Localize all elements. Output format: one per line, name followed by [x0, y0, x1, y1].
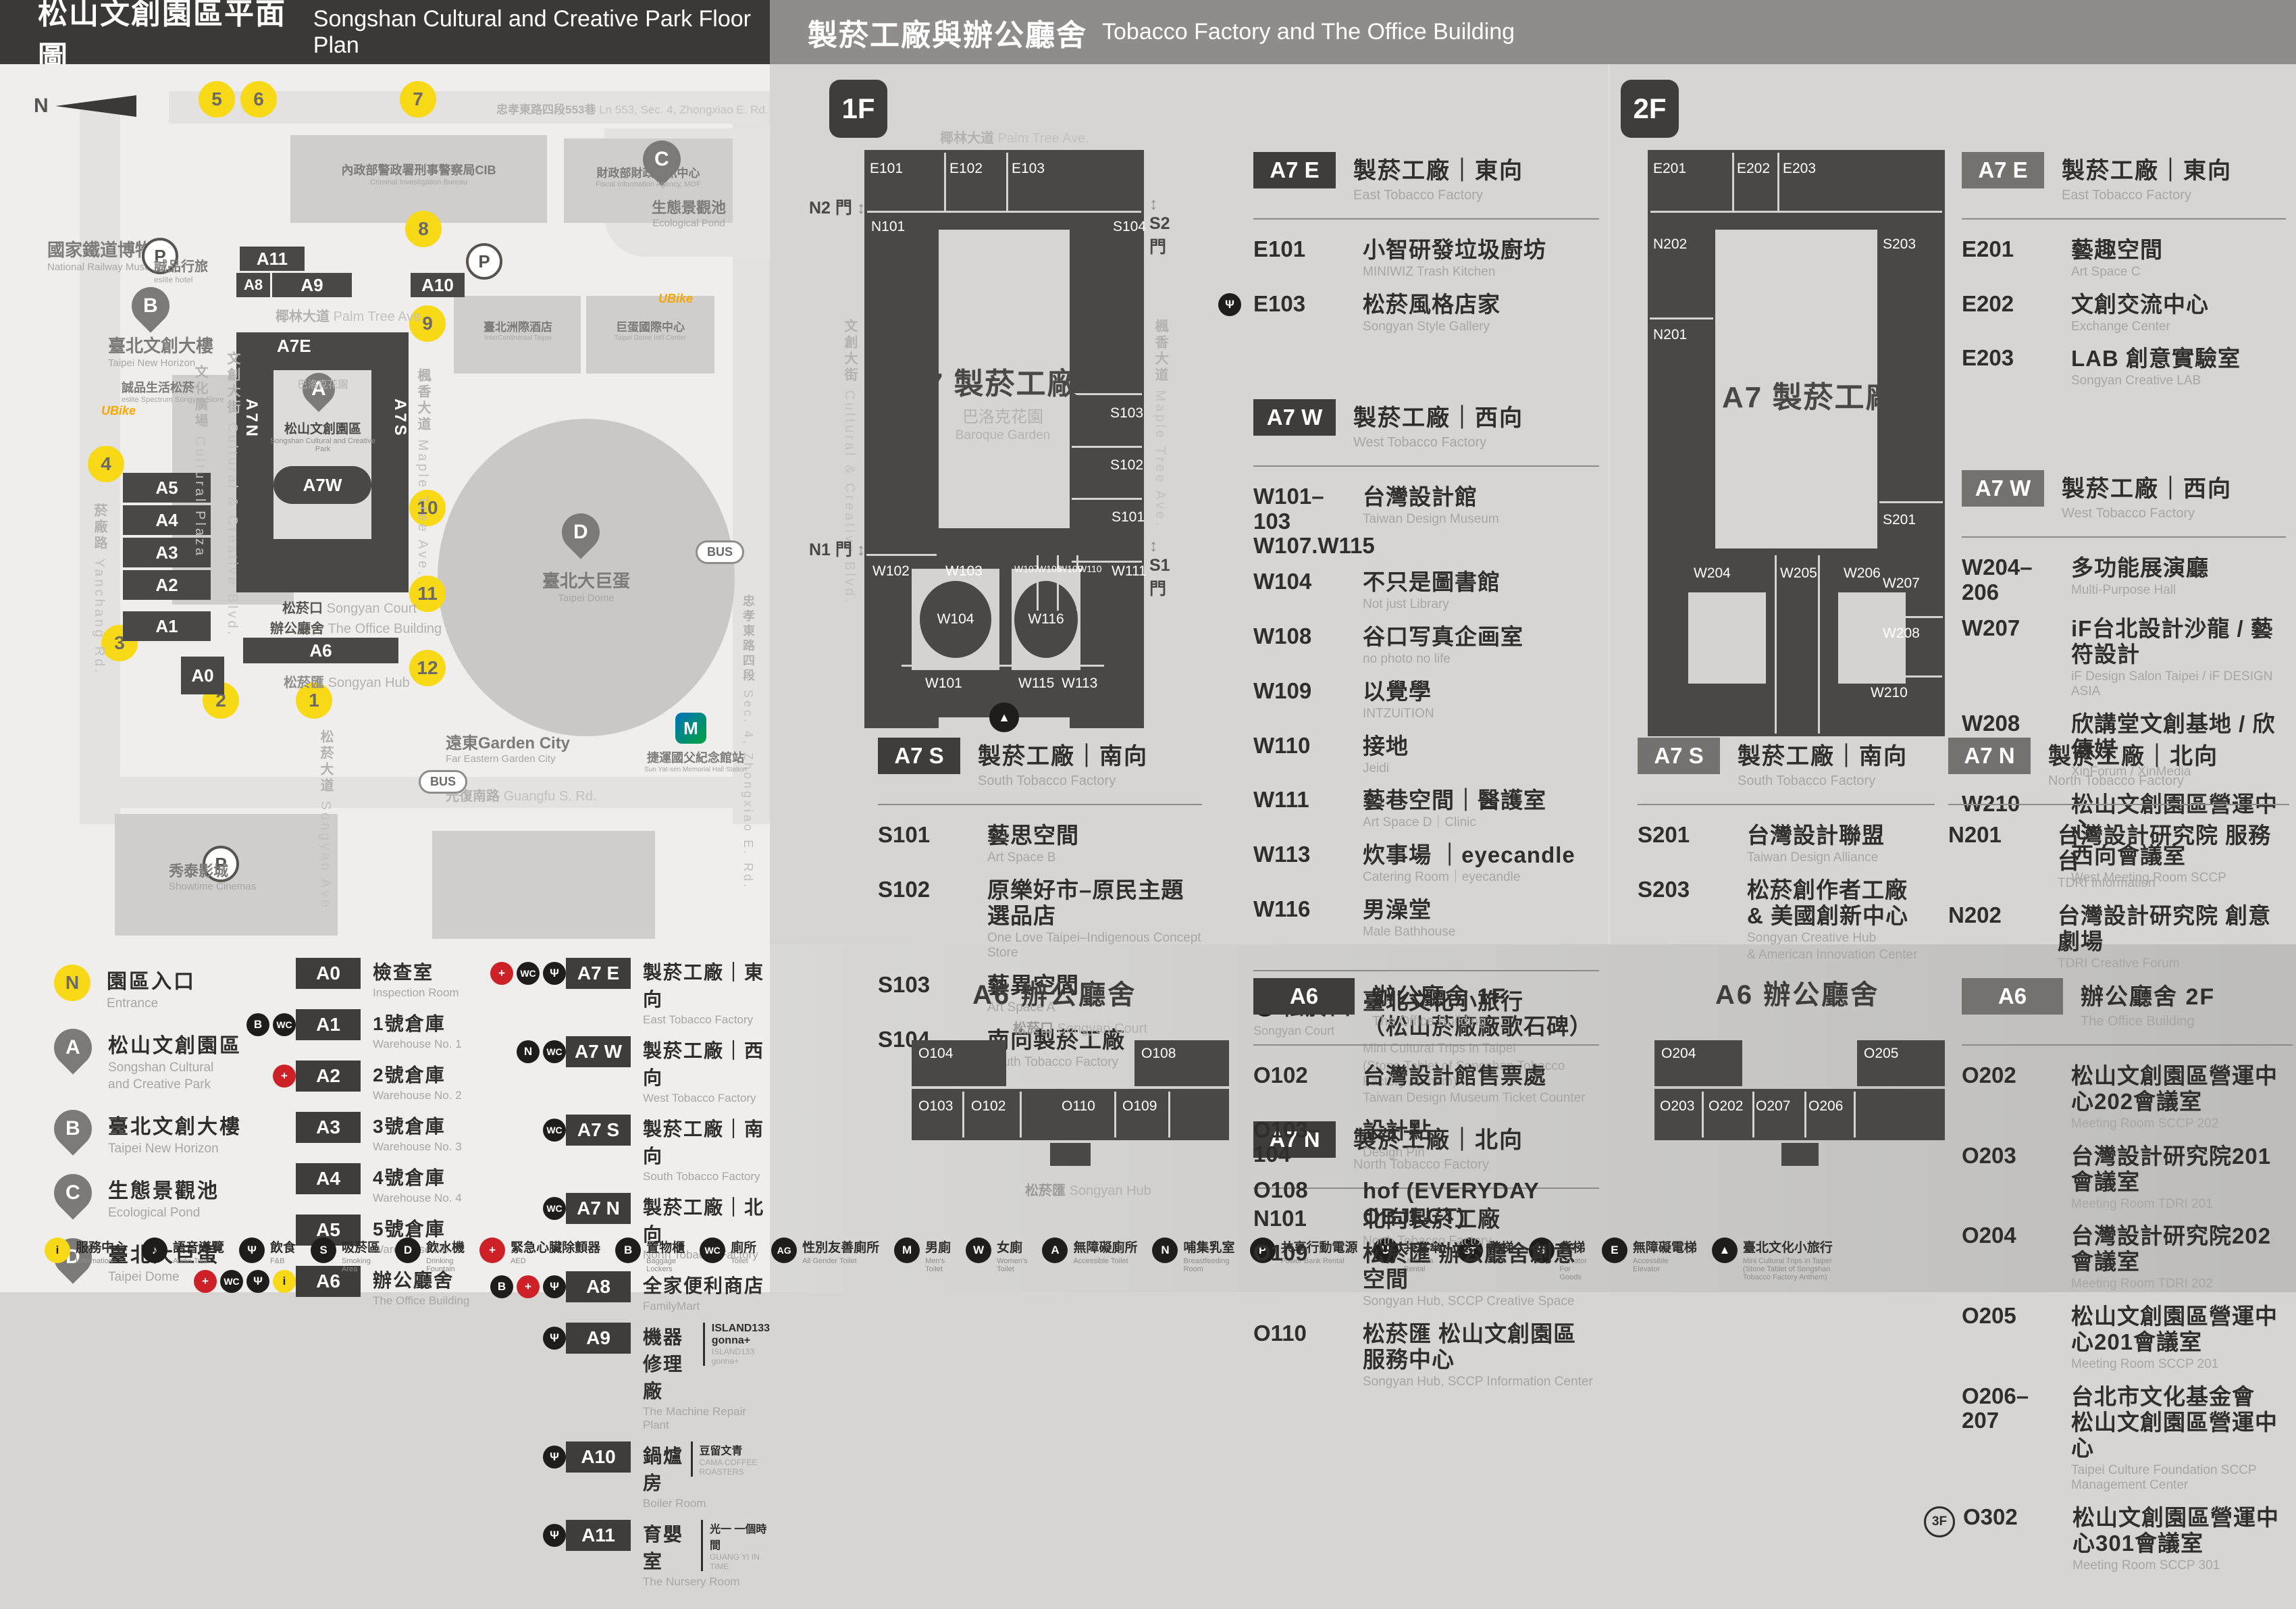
- facility-item: D 飲水機 Drinking Fountain: [395, 1237, 465, 1273]
- room-e102: E102: [949, 161, 983, 177]
- legend-icons: Ψ: [473, 1441, 566, 1468]
- gate-s2: ↕ S2 門: [1149, 195, 1170, 258]
- plan1f-street-right: 楓香大道 Maple Tree Ave.: [1151, 319, 1170, 528]
- legend-icons: WC: [473, 1193, 566, 1220]
- marker-icon: A: [46, 1021, 99, 1074]
- map-a10: A10: [411, 273, 465, 297]
- room-name: 藝巷空間｜醫護室 Art Space D｜Clinic: [1363, 788, 1546, 831]
- fnb-icon: Ψ: [543, 1446, 566, 1468]
- map-songyan-hub: 松菸匯 Songyan Hub: [284, 671, 410, 691]
- room-name: 炊事場 ｜eyecandle Catering Room｜eyecandle: [1363, 842, 1575, 886]
- statue-icon: ▲: [1712, 1237, 1738, 1263]
- legend-row: +WCΨ A7 E 製菸工廠｜東向 East Tobacco Factory: [473, 958, 770, 1027]
- room-name: 藝趣空間 Art Space C: [2071, 237, 2163, 280]
- section-badge: A7 S: [878, 738, 960, 774]
- directory-entry: 3F O302 松山文創園區營運中心301會議室 Meeting Room SC…: [1962, 1505, 2293, 1574]
- directory-entry: W204–206 多功能展演廳 Multi-Purpose Hall: [1962, 555, 2286, 605]
- tenant-label: 光一 一個時間GUANG YI IN TIME: [701, 1520, 770, 1571]
- room-name: 台灣設計研究院201會議室 Meeting Room TDRI 201: [2071, 1144, 2293, 1212]
- room-name: 接地 Jeidi: [1363, 734, 1409, 777]
- room-name: 台灣設計館售票處 Taiwan Design Museum Ticket Cou…: [1363, 1063, 1585, 1106]
- entrance-7: 7: [400, 81, 436, 118]
- legend-icons: [203, 1112, 296, 1116]
- room-name: 谷口写真企画室 no photo no life: [1363, 624, 1523, 667]
- directory-entry: O103–104 設計點 Design Pin: [1253, 1118, 1599, 1167]
- section-badge: A7 W: [1253, 399, 1336, 436]
- map-baroque: 巴洛克花園: [276, 378, 370, 392]
- parking-icon-2: P: [466, 243, 502, 280]
- directory-entry: W111 藝巷空間｜醫護室 Art Space D｜Clinic: [1253, 788, 1599, 831]
- room-o204: O204: [1661, 1046, 1696, 1062]
- section-badge: A6: [1253, 978, 1355, 1015]
- metro-logo: M: [675, 713, 706, 744]
- room-code: O302: [1963, 1505, 2066, 1574]
- legend-icons: +: [203, 1061, 296, 1088]
- tenant-label: 豆留文青CAMA COFFEE ROASTERS: [691, 1441, 770, 1477]
- room-s101: S101: [1112, 509, 1145, 526]
- nursing-icon: N: [1152, 1237, 1178, 1263]
- street-cc-blvd: 文創大街 Cultural & Creative Blvd.: [223, 351, 242, 637]
- aed-icon: +: [490, 962, 513, 985]
- legend-badge: A0: [296, 958, 361, 989]
- map-a9: A9: [272, 273, 352, 297]
- section-badge: A7 S: [1638, 738, 1720, 774]
- map-a7w-label: A7W: [273, 466, 371, 504]
- facility-item: E 無障礙電梯 Accessible Elevator: [1602, 1237, 1697, 1273]
- map-songyan-court: 松菸口 Songyan Court: [282, 597, 417, 617]
- marker-icon: N: [54, 965, 90, 1001]
- room-w205: W205: [1780, 565, 1817, 582]
- map-a2: A2: [123, 570, 211, 600]
- garden-city-building: [432, 831, 655, 939]
- directory-entry: O203 台灣設計研究院201會議室 Meeting Room TDRI 201: [1962, 1144, 2293, 1212]
- room-code: S103: [878, 973, 981, 1016]
- map-a1: A1: [123, 611, 211, 641]
- room-name: 松菸創作者工廠 & 美國創新中心 Songyan Creative Hub & …: [1747, 877, 1917, 963]
- legend-badge: A7 N: [566, 1193, 631, 1224]
- gate-s1: ↕ S1 門: [1149, 536, 1170, 600]
- directory-entry: S201 台灣設計聯盟 Taiwan Design Alliance: [1638, 823, 1935, 866]
- toilet-icon: WC: [273, 1013, 296, 1036]
- allgender-icon: AG: [771, 1237, 797, 1263]
- room-code: O110: [1253, 1321, 1356, 1390]
- street-songyan-ave: 松菸大道 Songyan Ave.: [316, 730, 336, 917]
- room-name: 多功能展演廳 Multi-Purpose Hall: [2071, 555, 2209, 605]
- legend-row: Ψ A9 機器修理廠 ISLAND133 gonna+ISLAND133 gon…: [473, 1323, 770, 1432]
- map-a8: A8: [236, 273, 270, 297]
- map-a0: A0: [181, 657, 224, 694]
- room-code: W116: [1253, 897, 1356, 940]
- room-s103: S103: [1110, 405, 1143, 422]
- legend-row: WC A7 S 製菸工廠｜南向 South Tobacco Factory: [473, 1115, 770, 1183]
- fnb-icon: Ψ: [543, 1327, 566, 1350]
- room-n201: N201: [1653, 327, 1687, 343]
- label-fia: 財政部財政資訊中心 Fiscal Information Agency, MOF: [577, 163, 719, 188]
- marker-icon: C: [46, 1166, 99, 1219]
- room-w115: W115: [1018, 675, 1054, 692]
- room-o104: O104: [918, 1046, 953, 1062]
- room-code: S102: [878, 877, 981, 961]
- a6-court-label: 松菸口 Songyan Court: [1013, 1017, 1147, 1037]
- section-badge: A7 E: [1962, 152, 2044, 188]
- legend-badge: A7 S: [566, 1115, 631, 1146]
- entrance-6: 6: [240, 81, 277, 118]
- room-name: 松菸風格店家 Songyan Style Gallery: [1363, 292, 1501, 335]
- floorplan-2f: E201 E202 E203 N202 N201 S203 S201 W204 …: [1648, 150, 1945, 736]
- info-icon: i: [45, 1237, 70, 1263]
- aed-icon: +: [479, 1237, 505, 1263]
- room-code: O206–207: [1962, 1384, 2064, 1493]
- floorplan-a6-2f: O204 O205 O203 O202 O207 O206: [1654, 1012, 1945, 1215]
- north-label: N: [34, 95, 49, 118]
- room-code: O204: [1962, 1223, 2064, 1292]
- floorplan-1f: 椰林大道 Palm Tree Ave. 文創大街 Cultural & Crea…: [864, 150, 1144, 728]
- legend-badge: A11: [566, 1520, 631, 1551]
- directory-entry: E201 藝趣空間 Art Space C: [1962, 237, 2286, 280]
- locker-icon: B: [615, 1237, 641, 1263]
- facility-item: ♪ 語音導覽 Audio Tour: [142, 1237, 224, 1265]
- room-code: N201: [1948, 823, 2051, 892]
- facility-item: Ψ 飲食 F&B: [239, 1237, 296, 1265]
- room-name: 小智研發垃圾廚坊 MINIWIZ Trash Kitchen: [1363, 237, 1546, 280]
- room-name: 台灣設計館 Taiwan Design Museum: [1363, 484, 1499, 558]
- marker-icon: B: [46, 1102, 99, 1155]
- label-eslite-hotel: 誠品行旅 eslite hotel: [154, 255, 208, 284]
- directory-entry: S203 松菸創作者工廠 & 美國創新中心 Songyan Creative H…: [1638, 877, 1935, 963]
- header-left: 松山文創園區平面圖 Songshan Cultural and Creative…: [0, 0, 770, 64]
- facility-item: W 女廁 Women's Toilet: [966, 1237, 1027, 1273]
- floor-divider: [1609, 64, 1610, 944]
- room-n101: N101: [871, 219, 905, 235]
- legend-icons: BWC: [203, 1009, 296, 1036]
- smoke-icon: S: [311, 1237, 336, 1263]
- legend-icons: Ψ: [473, 1520, 566, 1547]
- page-title-right-en: Tobacco Factory and The Office Building: [1102, 19, 1515, 45]
- map-a6: A6: [243, 638, 398, 663]
- legend-text: 製菸工廠｜南向 South Tobacco Factory: [643, 1115, 770, 1183]
- room-code: E201: [1962, 237, 2064, 280]
- bus-stop-icon-1: BUS: [419, 770, 467, 794]
- toilet-icon: WC: [700, 1237, 725, 1263]
- directory-items: N201 台灣設計研究院 服務台 TDRI Information N202 台…: [1948, 823, 2289, 971]
- directory-entry: W109 以覺學 INTZUiTION: [1253, 679, 1599, 722]
- statue-icon: ▲: [989, 703, 1019, 732]
- floor-3f-badge: 3F: [1924, 1506, 1955, 1537]
- room-name: 不只是圖書館 Not just Library: [1363, 569, 1501, 613]
- room-code: E203: [1962, 346, 2064, 389]
- room-o203: O203: [1660, 1098, 1694, 1115]
- ubike-icon-1: UBike: [101, 404, 136, 418]
- room-code: S101: [878, 823, 981, 866]
- legend-text: 2號倉庫 Warehouse No. 2: [373, 1061, 462, 1102]
- label-mrt: 捷運國父紀念館站 Sun Yat-sen Memorial Hall Stati…: [621, 748, 770, 773]
- legend-badge: A7 E: [566, 958, 631, 989]
- directory-entry: W104 不只是圖書館 Not just Library: [1253, 569, 1599, 613]
- floor-2f-badge: 2F: [1621, 80, 1679, 138]
- legend-text: 鍋爐房 豆留文青CAMA COFFEE ROASTERS Boiler Room: [643, 1441, 770, 1510]
- room-o202: O202: [1708, 1098, 1743, 1115]
- legend-row: NWC A7 W 製菸工廠｜西向 West Tobacco Factory: [473, 1036, 770, 1105]
- legend-row: A3 3號倉庫 Warehouse No. 3: [203, 1112, 473, 1154]
- room-w113: W113: [1062, 675, 1097, 692]
- room-e202: E202: [1737, 161, 1770, 177]
- directory-entry: W113 炊事場 ｜eyecandle Catering Room｜eyecan…: [1253, 842, 1599, 886]
- label-dome: 臺北大巨蛋 Taipei Dome: [525, 567, 647, 604]
- gate-n1: N1 門 ↕: [809, 536, 865, 561]
- room-o108: O108: [1141, 1046, 1176, 1062]
- room-name: 松菸匯 松山文創園區服務中心 Songyan Hub, SCCP Informa…: [1363, 1321, 1599, 1390]
- room-w206: W206: [1844, 565, 1881, 582]
- room-code: O109: [1253, 1241, 1356, 1310]
- room-name: 松山文創園區營運中心201會議室 Meeting Room SCCP 201: [2071, 1304, 2293, 1373]
- directory-entry: Ψ E103 松菸風格店家 Songyan Style Gallery: [1253, 292, 1599, 335]
- map-label-pond: 生態景觀池 Ecological Pond: [628, 196, 750, 229]
- directory-entry: S101 藝思空間 Art Space B: [878, 823, 1202, 866]
- street-palm: 椰林大道 Palm Tree Ave.: [276, 305, 425, 325]
- section-a7s-2f: A7 S 製菸工廠｜南向 South Tobacco Factory S201 …: [1638, 738, 1935, 998]
- room-name: 松菸匯 辦公廳舍創意空間 Songyan Hub, SCCP Creative …: [1363, 1241, 1599, 1310]
- facility-item: AG 性別友善廁所 All Gender Toilet: [771, 1237, 879, 1265]
- room-code: E202: [1962, 292, 2064, 335]
- room-w101: W101: [925, 675, 962, 692]
- room-w207: W207: [1883, 576, 1920, 592]
- room-code: E103: [1253, 292, 1356, 335]
- legend-icons: [203, 1163, 296, 1167]
- room-code: E101: [1253, 237, 1356, 280]
- legend-text: 機器修理廠 ISLAND133 gonna+ISLAND133 gonna+ T…: [643, 1323, 770, 1432]
- room-o103: O103: [918, 1098, 953, 1115]
- map-a7s-label: A7S: [390, 399, 409, 438]
- facility-item: WC 廁所 Toilet: [700, 1237, 756, 1265]
- directory-items: W101–103 W107.W115 台灣設計館 Taiwan Design M…: [1253, 484, 1599, 940]
- directory-entry: E202 文創交流中心 Exchange Center: [1962, 292, 2286, 335]
- room-code: S203: [1638, 877, 1740, 963]
- street-zhongxiao: 忠孝東路四段 Sec. 4, Zhongxiao E. Rd.: [739, 594, 757, 890]
- elevator-icon: E: [1602, 1237, 1627, 1263]
- legend-icons: +WCΨ: [473, 958, 566, 985]
- room-code: O202: [1962, 1063, 2064, 1132]
- room-code: W111: [1253, 788, 1356, 831]
- room-e201: E201: [1653, 161, 1686, 177]
- toilet-icon: WC: [543, 1197, 566, 1220]
- directory-items: O102 台灣設計館售票處 Taiwan Design Museum Ticke…: [1253, 1063, 1599, 1390]
- legend-badge: A4: [296, 1163, 361, 1194]
- label-dome-center: 巨蛋國際中心 Taipei Dome Int'l Center: [593, 317, 708, 342]
- room-o102: O102: [971, 1098, 1006, 1115]
- map-a11: A11: [240, 247, 305, 271]
- street-zhongxiao-lane: 忠孝東路四段553巷 Ln 553, Sec. 4, Zhongxiao E. …: [496, 100, 768, 117]
- section-badge: A7 E: [1253, 152, 1336, 188]
- directory-entry: O110 松菸匯 松山文創園區服務中心 Songyan Hub, SCCP In…: [1253, 1321, 1599, 1390]
- room-o206: O206: [1808, 1098, 1843, 1115]
- room-w204: W204: [1694, 565, 1731, 582]
- room-name: 台北市文化基金會 松山文創園區營運中心 Taipei Culture Found…: [2071, 1384, 2293, 1493]
- map-a7e-label: A7E: [277, 336, 311, 357]
- street-maple: 楓香大道 Maple Tree Ave.: [413, 368, 433, 578]
- legend-row: A0 檢查室 Inspection Room: [203, 958, 473, 1000]
- room-name: hof (EVERYDAY OBJECT): [1363, 1178, 1599, 1229]
- label-cib: 內政部警政署刑事警察局CIB Criminal Investigation Bu…: [317, 161, 520, 186]
- room-name: 男澡堂 Male Bathhouse: [1363, 897, 1455, 940]
- floor-1f-badge: 1F: [829, 80, 887, 138]
- section-badge: A6: [1962, 978, 2063, 1015]
- room-code: W104: [1253, 569, 1356, 613]
- directory-entry: O109 松菸匯 辦公廳舍創意空間 Songyan Hub, SCCP Crea…: [1253, 1241, 1599, 1310]
- room-e101: E101: [870, 161, 903, 177]
- directory-items: S201 台灣設計聯盟 Taiwan Design Alliance S203 …: [1638, 823, 1935, 963]
- legend-row: A4 4號倉庫 Warehouse No. 4: [203, 1163, 473, 1205]
- directory-entry: O204 台灣設計研究院202會議室 Meeting Room TDRI 202: [1962, 1223, 2293, 1292]
- directory-items: O202 松山文創園區營運中心202會議室 Meeting Room SCCP …: [1962, 1063, 2293, 1574]
- room-code: W207: [1962, 616, 2064, 700]
- room-code: N202: [1948, 903, 2051, 972]
- facility-item: M 男廁 Men's Toilet: [894, 1237, 951, 1273]
- directory-entry: S102 原樂好市–原民主題選品店 One Love Taipei–Indige…: [878, 877, 1202, 961]
- room-n202: N202: [1653, 236, 1687, 253]
- section-a7e-1f: A7 E 製菸工廠｜東向 East Tobacco Factory E101 小…: [1253, 152, 1599, 334]
- room-code: W110: [1253, 734, 1356, 777]
- legend-badge: A2: [296, 1061, 361, 1092]
- room-o205: O205: [1864, 1046, 1898, 1062]
- facility-item: B 置物櫃 Baggage Lockers: [615, 1237, 685, 1273]
- room-code: W204–206: [1962, 555, 2064, 605]
- room-name: 松山文創園區營運中心202會議室 Meeting Room SCCP 202: [2071, 1063, 2293, 1132]
- legend-icons: [203, 958, 296, 962]
- directory-entry: E203 LAB 創意實驗室 Songyan Creative LAB: [1962, 346, 2286, 389]
- directory-entry: O206–207 台北市文化基金會 松山文創園區營運中心 Taipei Cult…: [1962, 1384, 2293, 1493]
- facility-item: S 吸菸區 Smoking Area: [311, 1237, 380, 1273]
- room-w103: W103: [945, 563, 983, 580]
- legend-row: Ψ A11 育嬰室 光一 一個時間GUANG YI IN TIME The Nu…: [473, 1520, 770, 1589]
- street-yanchang: 菸廠路 Yanchang Rd.: [90, 503, 109, 675]
- section-a7n-2f: A7 N 製菸工廠｜北向 North Tobacco Factory N201 …: [1948, 738, 2289, 1006]
- legend-icons: WC: [473, 1115, 566, 1142]
- room-e103: E103: [1012, 161, 1045, 177]
- plan1f-center-label: A7 製菸工廠: [904, 359, 1078, 403]
- legend-text: 檢查室 Inspection Room: [373, 958, 459, 1000]
- legend-text: 製菸工廠｜西向 West Tobacco Factory: [643, 1036, 770, 1105]
- directory-entry: E101 小智研發垃圾廚坊 MINIWIZ Trash Kitchen: [1253, 237, 1599, 280]
- map-label-sccpark: 松山文創園區 Songshan Cultural and Creative Pa…: [269, 419, 377, 453]
- room-w110: W110: [1078, 563, 1102, 574]
- gate-n2: N2 門 ↕: [809, 195, 865, 219]
- room-name: 台灣設計研究院 服務台 TDRI Information: [2058, 823, 2289, 892]
- facility-item: N 哺集乳室 Breastfeeding Room: [1152, 1237, 1234, 1273]
- legend-badge: A1: [296, 1009, 361, 1040]
- room-code: W113: [1253, 842, 1356, 886]
- room-code: O205: [1962, 1304, 2064, 1373]
- directory-entry: W108 谷口写真企画室 no photo no life: [1253, 624, 1599, 667]
- facility-item: A 無障礙廁所 Accessible Toilet: [1042, 1237, 1137, 1265]
- plan1f-street-top: 椰林大道 Palm Tree Ave.: [940, 127, 1089, 147]
- label-garden-city: 遠東Garden City Far Eastern Garden City: [446, 730, 570, 765]
- legend-text: 4號倉庫 Warehouse No. 4: [373, 1163, 462, 1205]
- a6-2f-plan-title: A6 辦公廳舍: [1715, 973, 1879, 1012]
- section-a6-2f: A6 辦公廳舍 2F The Office Building O202 松山文創…: [1962, 978, 2293, 1609]
- room-o109: O109: [1122, 1098, 1157, 1115]
- directory-items: E201 藝趣空間 Art Space C E202 文創交流中心 Exchan…: [1962, 237, 2286, 389]
- locker-icon: B: [246, 1013, 269, 1036]
- room-w116: W116: [1014, 581, 1078, 658]
- room-s201: S201: [1883, 512, 1916, 528]
- north-arrow: N: [34, 95, 136, 118]
- ubike-icon-2: UBike: [658, 292, 693, 306]
- legend-icons: NWC: [473, 1036, 566, 1063]
- street-guangfu: 光復南路 Guangfu S. Rd.: [446, 785, 596, 804]
- section-a7w-1f: A7 W 製菸工廠｜西向 West Tobacco Factory W101–1…: [1253, 399, 1599, 940]
- room-code: O103–104: [1253, 1118, 1356, 1167]
- entrance-5: 5: [199, 81, 235, 118]
- label-intercontinental: 臺北洲際酒店 InterContinental Taipei: [461, 317, 575, 342]
- directory-entry: N202 台灣設計研究院 創意劇場 TDRI Creative Forum: [1948, 903, 2289, 972]
- room-s203: S203: [1883, 236, 1916, 253]
- room-name: 原樂好市–原民主題選品店 One Love Taipei–Indigenous …: [987, 877, 1202, 961]
- directory-entry: O205 松山文創園區營運中心201會議室 Meeting Room SCCP …: [1962, 1304, 2293, 1373]
- room-w107: W107: [1014, 563, 1039, 574]
- room-name: 松山文創園區營運中心301會議室 Meeting Room SCCP 301: [2072, 1505, 2293, 1574]
- room-w111: W111: [1112, 563, 1147, 580]
- access-icon: A: [1042, 1237, 1068, 1263]
- tenant-label: ISLAND133 gonna+ISLAND133 gonna+: [703, 1323, 770, 1366]
- a6-hub-label: 松菸匯 Songyan Hub: [1025, 1179, 1151, 1199]
- legend-icons: Ψ: [473, 1323, 566, 1350]
- entrance-8: 8: [405, 211, 442, 247]
- women-icon: W: [966, 1237, 991, 1263]
- room-name: 台灣設計研究院202會議室 Meeting Room TDRI 202: [2071, 1223, 2293, 1292]
- room-code: O108: [1253, 1178, 1356, 1229]
- room-name: 台灣設計聯盟 Taiwan Design Alliance: [1747, 823, 1885, 866]
- room-name: 藝思空間 Art Space B: [987, 823, 1079, 866]
- room-name: 以覺學 INTZUiTION: [1363, 679, 1434, 722]
- room-name: LAB 創意實驗室 Songyan Creative LAB: [2071, 346, 2241, 389]
- directory-entry: O202 松山文創園區營運中心202會議室 Meeting Room SCCP …: [1962, 1063, 2293, 1132]
- room-w104: W104: [920, 581, 991, 658]
- room-name: 文創交流中心 Exchange Center: [2071, 292, 2209, 335]
- entrance-4: 4: [88, 446, 124, 482]
- legend-row: + A2 2號倉庫 Warehouse No. 2: [203, 1061, 473, 1102]
- room-e203: E203: [1783, 161, 1816, 177]
- directory-items: E101 小智研發垃圾廚坊 MINIWIZ Trash Kitchen Ψ E1…: [1253, 237, 1599, 334]
- room-name: 設計點 Design Pin: [1363, 1118, 1432, 1167]
- room-s102: S102: [1110, 457, 1143, 474]
- label-showtime: 秀泰影城 Showtime Cinemas: [169, 859, 256, 892]
- entrance-12: 12: [409, 650, 446, 686]
- bus-stop-icon-2: BUS: [696, 540, 744, 564]
- map-a7n-label: A7N: [242, 399, 261, 439]
- street-cultural-plaza: 文化廣場 Cultural Plaza: [190, 365, 210, 558]
- section-a7e-2f: A7 E 製菸工廠｜東向 East Tobacco Factory E201 藝…: [1962, 152, 2286, 389]
- facility-item: i 服務中心 Information: [45, 1237, 127, 1265]
- legend-icons: [203, 1215, 296, 1219]
- audio-icon: ♪: [142, 1237, 167, 1263]
- legend-text: 1號倉庫 Warehouse No. 1: [373, 1009, 462, 1051]
- room-code: O102: [1253, 1063, 1356, 1106]
- directory-entry: W116 男澡堂 Male Bathhouse: [1253, 897, 1599, 940]
- page-title-right-zh: 製菸工廠與辦公廳舍: [808, 11, 1087, 54]
- facility-item: + 緊急心臟除顫器 AED: [479, 1237, 600, 1265]
- floorplan-a6-1f: 松菸口 Songyan Court O104 O108 O103 O102 O1…: [912, 1012, 1229, 1215]
- room-w208: W208: [1883, 625, 1920, 642]
- header-right: 製菸工廠與辦公廳舍 Tobacco Factory and The Office…: [770, 0, 2296, 64]
- legend-badge: A9: [566, 1323, 631, 1354]
- directory-entry: W101–103 W107.W115 台灣設計館 Taiwan Design M…: [1253, 484, 1599, 558]
- room-code: O203: [1962, 1144, 2064, 1212]
- legend-badge: A10: [566, 1441, 631, 1473]
- toilet-icon: WC: [543, 1040, 566, 1063]
- aed-icon: +: [273, 1065, 296, 1088]
- nursing-icon: N: [517, 1040, 540, 1063]
- legend-text: 3號倉庫 Warehouse No. 3: [373, 1112, 462, 1154]
